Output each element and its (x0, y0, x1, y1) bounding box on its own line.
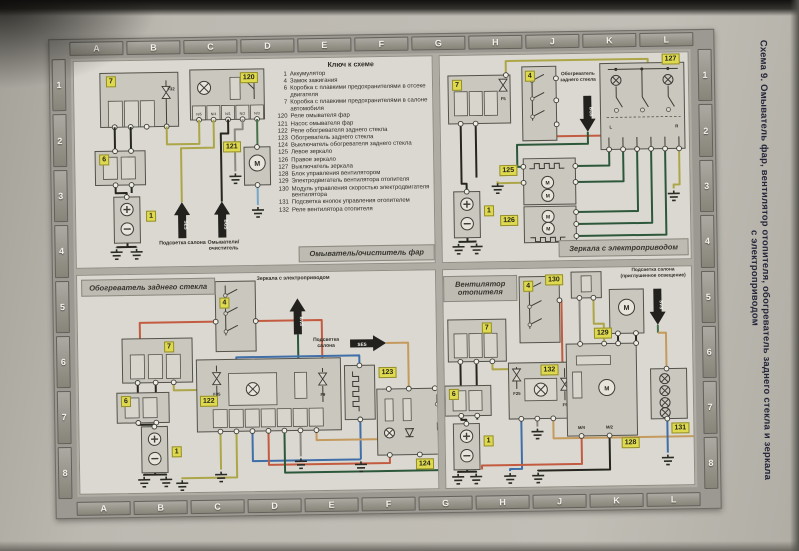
rear-heater-arrow-label: Обогреватель заднего стекла (557, 72, 599, 84)
motor-letter: M (546, 226, 550, 232)
caption-mirrors: Зеркала с электроприводом (558, 238, 688, 257)
fuse-f25-label: F25 (513, 391, 521, 396)
legend-row: 132Реле вентилятора отопителя (272, 205, 434, 214)
arrow-code-svs: SVS (659, 300, 664, 309)
badge-battery-1: 1 (172, 446, 182, 457)
book-edge-shadow-right (790, 0, 799, 551)
grid-letter-tab: A (77, 501, 131, 516)
motor-letter: M (624, 305, 630, 312)
grid-letter-tab: G (418, 496, 472, 511)
grid-number-tab: 1 (52, 59, 67, 112)
caption-fan: Вентилятор отопителя (443, 275, 517, 302)
panel-headlight-washer: F32 N/5 N/4 (73, 55, 436, 269)
speed-module-130 (571, 272, 601, 301)
grid-number-tab: 8 (58, 447, 73, 500)
grid-letters-bottom: A B C D E F G H J K L (77, 492, 701, 516)
arrow-code-ses: SES (357, 342, 366, 347)
relay-terminal-label: N/5 (196, 112, 202, 116)
caption-rear-heater: Обогреватель заднего стекла (81, 278, 215, 297)
badge-battery-1: 1 (484, 435, 494, 446)
grid-letter-tab: K (589, 493, 643, 508)
badge-fusebox-6: 6 (449, 389, 459, 400)
fuse-f9-label: F9 (320, 392, 326, 397)
dim-light-label: Подсветка салона (приглушенное освещение… (615, 267, 691, 280)
grid-letter-tab: C (191, 499, 245, 514)
motor-letter: M (254, 161, 260, 168)
battery-1 (454, 189, 481, 238)
grid-number-tab: 5 (701, 270, 716, 323)
badge-pump-121: 121 (223, 141, 241, 152)
dim-light-arrow: SVS (649, 289, 666, 325)
relay-terminal-label: N/3 (254, 111, 260, 115)
grid-number-tab: 7 (57, 391, 72, 444)
grid-number-tab: 2 (52, 114, 67, 167)
grid-number-tab: 4 (54, 225, 69, 278)
grid-letter-tab: H (468, 35, 522, 50)
grid-letter-tab: H (475, 495, 529, 510)
fusebox-cabin-7 (122, 338, 193, 385)
mirror-right-pos: R (675, 123, 678, 128)
rear-window-element-123 (344, 363, 375, 422)
grid-letter-tab: D (240, 38, 294, 53)
diagram-frame: A B C D E F G H J K L A B C D E F G H J … (48, 29, 721, 519)
rear-heater-circuit-svg: F35 F9 BVS (77, 270, 438, 494)
mirrors-arrow: BVS (289, 298, 306, 334)
fuse-f32-label: F32 (167, 86, 175, 91)
grid-letter-tab: L (639, 32, 693, 47)
badge-fusebox-7: 7 (482, 322, 492, 333)
relay-terminal-label: N/1 (225, 112, 231, 116)
schematic-key-legend: Ключ к схеме 1Аккумулятор 4Замок зажиган… (270, 60, 435, 245)
badge-battery-1: 1 (484, 205, 494, 216)
heater-switch-124 (377, 385, 439, 457)
badge-module-130: 130 (545, 274, 563, 285)
grid-letter-tab: F (354, 37, 408, 52)
badge-fusebox-6: 6 (99, 154, 109, 165)
battery-1 (141, 424, 168, 473)
badge-switch-127: 127 (662, 53, 680, 64)
badge-relay-120: 120 (240, 72, 258, 83)
washer-pump-121: M (244, 144, 271, 187)
panel-heater-fan: F25 F9 M (442, 265, 695, 489)
badge-relay-122: 122 (200, 396, 218, 407)
grid-number-tab: 1 (698, 49, 713, 102)
arrow-code-ses: SES (183, 220, 188, 229)
ignition-switch-4 (213, 281, 259, 352)
badge-relay-132: 132 (540, 364, 558, 375)
arrow-code-bvs: BVS (299, 317, 304, 327)
relay-terminal-label: N/4 (211, 112, 217, 116)
arrow-code-bgs: BGS (223, 219, 228, 229)
relay-terminal-label: N/2 (240, 112, 246, 116)
fusebox-cabin-7 (448, 319, 507, 364)
grid-number-tab: 8 (704, 436, 719, 489)
fuse-f5-label: F5 (501, 96, 507, 101)
grid-letter-tab: J (532, 494, 586, 509)
grid-number-tab: 6 (702, 326, 717, 379)
grid-letter-tab: E (297, 38, 351, 53)
badge-motor-129: 129 (594, 327, 612, 338)
badge-illumination-131: 131 (671, 422, 689, 433)
cabin-light-arrow: SES (174, 202, 191, 238)
badge-ignition-4: 4 (523, 281, 533, 292)
grid-number-tab: 7 (703, 381, 718, 434)
panel-power-mirrors: F5 BG5 (439, 51, 692, 263)
badge-fusebox-7: 7 (164, 341, 174, 352)
washers-label: Омыватели/очиститель (198, 239, 248, 252)
arrow-code-bg5: BG5 (589, 107, 594, 117)
mirrors-circuit-svg: F5 BG5 (440, 52, 691, 262)
fan-control-128: M M/4 M/2 (566, 341, 640, 439)
badge-battery-1: 1 (146, 211, 156, 222)
left-mirror-125: M M (521, 158, 579, 205)
badge-ignition-4: 4 (219, 297, 229, 308)
cabin-light-arrow: SES (350, 335, 386, 352)
motor-letter: M (546, 193, 550, 199)
cabin-light-label: Подсветка салона (304, 338, 348, 350)
grid-number-tab: 2 (698, 104, 713, 157)
page-title-vertical: Схема 9. Омыватель фар, вентилятор отопи… (725, 40, 774, 516)
mirror-switch-127: L R (600, 62, 685, 152)
grid-letter-tab: B (134, 500, 188, 515)
grid-number-tab: 3 (53, 170, 68, 223)
terminal-m2: M/2 (606, 424, 614, 429)
scanned-manual-page: A B C D E F G H J K L A B C D E F G H J … (0, 0, 799, 551)
grid-letter-tab: A (69, 41, 123, 56)
grid-number-tab: 6 (56, 336, 71, 389)
motor-letter: M (604, 386, 609, 392)
rear-heater-arrow: BG5 (579, 96, 596, 132)
badge-fusebox-7: 7 (452, 80, 462, 91)
grid-letter-tab: L (646, 492, 700, 507)
washers-arrow: BGS (214, 201, 231, 237)
badge-control-128: 128 (622, 437, 640, 448)
page-edge-shadow-bottom (0, 541, 799, 551)
page-edge-shadow-top (0, 0, 799, 16)
badge-fusebox-6: 6 (121, 396, 131, 407)
mirrors-arrow-label: Зеркала с электроприводом (253, 275, 333, 282)
grid-number-tab: 5 (55, 280, 70, 333)
grid-letter-tab: F (362, 497, 416, 512)
motor-letter: M (546, 214, 550, 220)
wiring-diagram-area: F32 N/5 N/4 (71, 49, 698, 497)
badge-fusebox-7: 7 (106, 76, 116, 87)
battery-1 (114, 194, 141, 243)
terminal-m4: M/4 (578, 425, 586, 430)
grid-number-tab: 3 (699, 160, 714, 213)
legend-title: Ключ к схеме (270, 60, 432, 70)
grid-letter-tab: C (183, 39, 237, 54)
right-mirror-126: M M (524, 206, 579, 243)
battery-1 (453, 421, 480, 470)
relay-122: F35 F9 (196, 358, 341, 435)
grid-letter-tab: G (411, 36, 465, 51)
badge-mirror-125: 125 (499, 165, 517, 176)
fan-motor-129: M (609, 289, 644, 336)
grid-numbers-right: 1 2 3 4 5 6 7 8 (698, 49, 719, 489)
grid-letter-tab: J (525, 34, 579, 49)
grid-letter-tab: E (305, 497, 359, 512)
badge-ignition-4: 4 (525, 71, 535, 82)
grid-letter-tab: D (248, 498, 302, 513)
grid-letter-tab: B (126, 40, 180, 55)
grid-number-tab: 4 (700, 215, 715, 268)
badge-mirror-126: 126 (500, 215, 518, 226)
panel-rear-window-heater: F35 F9 BVS (76, 269, 439, 495)
grid-numbers-left: 1 2 3 4 5 6 7 8 (52, 59, 73, 499)
motor-letter: M (545, 180, 549, 186)
button-illumination-131 (650, 366, 687, 421)
badge-switch-124: 124 (416, 458, 434, 469)
badge-heater-123: 123 (378, 367, 396, 378)
grid-letter-tab: K (582, 33, 636, 48)
caption-washer: Омыватель/очиститель фар (299, 244, 435, 262)
